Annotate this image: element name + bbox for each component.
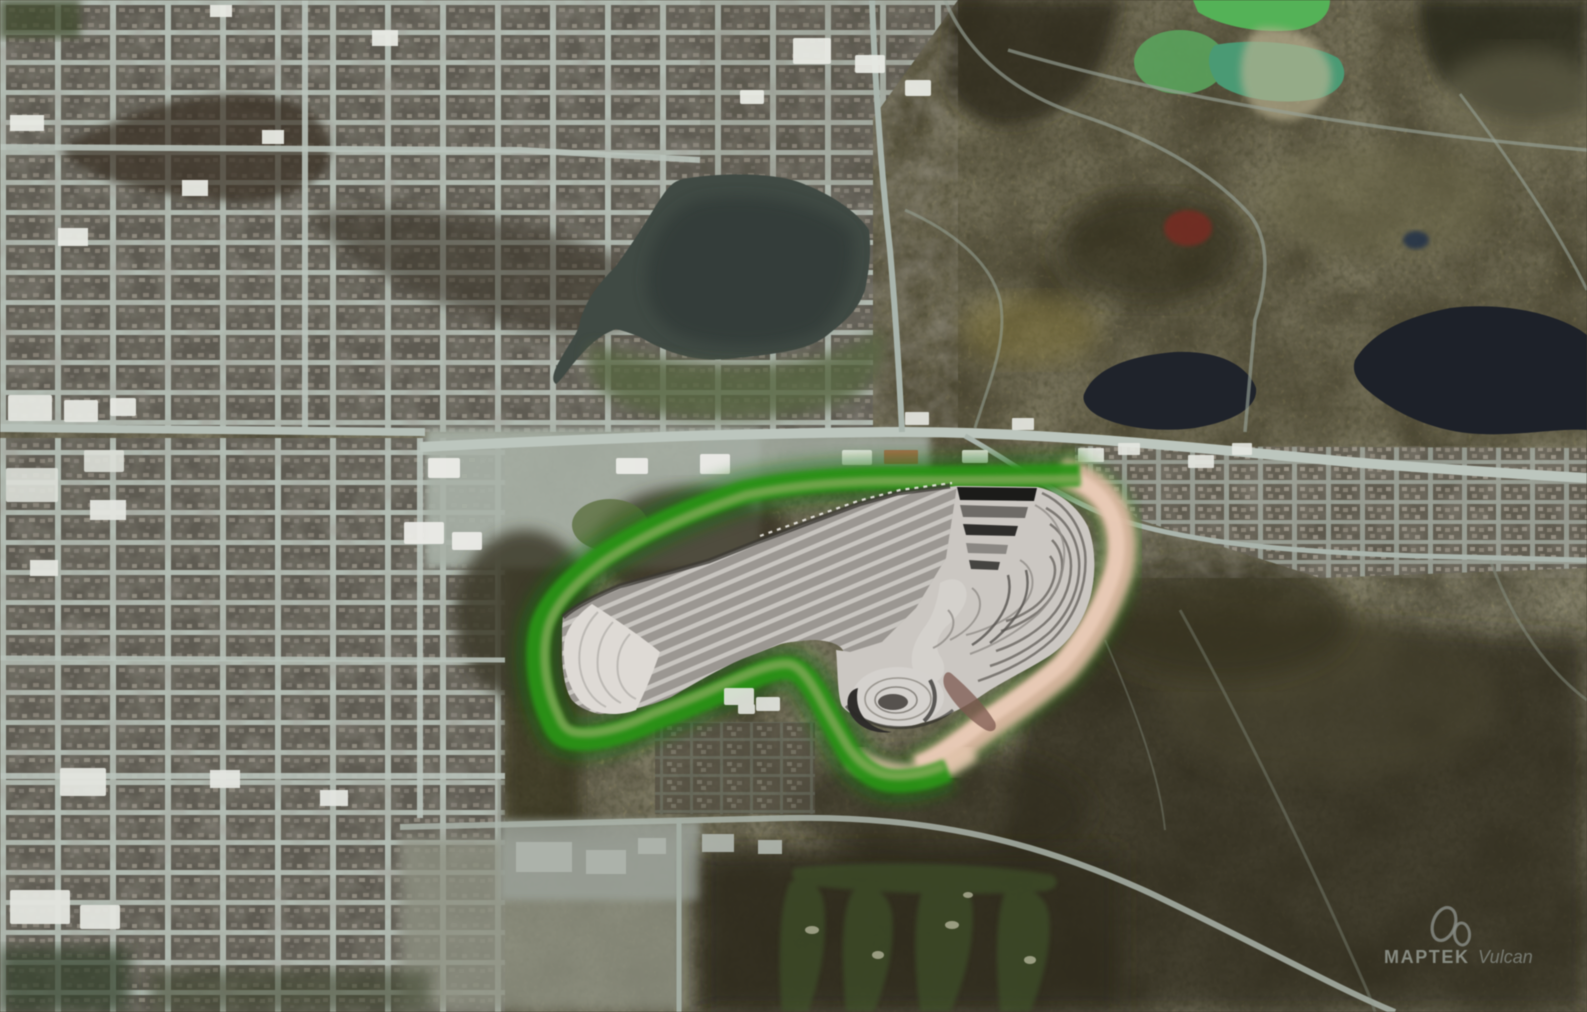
svg-text:MAPTEK: MAPTEK (1384, 947, 1470, 967)
svg-text:Vulcan: Vulcan (1478, 947, 1533, 967)
